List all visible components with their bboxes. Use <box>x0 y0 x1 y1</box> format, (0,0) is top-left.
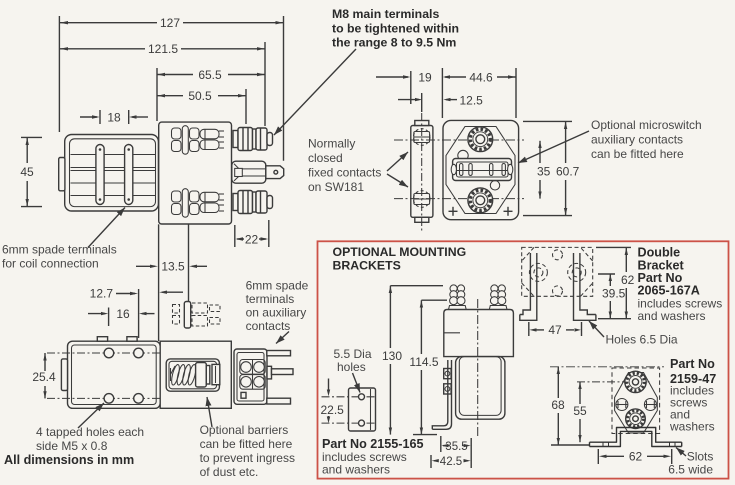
svg-text:Part No: Part No <box>670 357 715 371</box>
svg-text:13.5: 13.5 <box>161 260 185 274</box>
svg-text:for coil connection: for coil connection <box>2 257 99 271</box>
svg-text:4 tapped holes each: 4 tapped holes each <box>36 425 144 439</box>
svg-text:contacts: contacts <box>246 319 291 333</box>
svg-text:45: 45 <box>20 165 34 179</box>
svg-text:terminals: terminals <box>246 292 295 306</box>
svg-text:127: 127 <box>160 16 180 30</box>
svg-text:can be fitted here: can be fitted here <box>200 437 293 451</box>
svg-text:62: 62 <box>629 450 643 464</box>
svg-text:can be fitted here: can be fitted here <box>591 147 684 161</box>
svg-text:closed: closed <box>308 151 343 165</box>
svg-text:BRACKETS: BRACKETS <box>333 259 401 273</box>
svg-text:42.5: 42.5 <box>440 456 462 468</box>
svg-text:and washers: and washers <box>638 309 706 323</box>
svg-text:35.5: 35.5 <box>445 441 467 453</box>
svg-text:44.6: 44.6 <box>469 71 493 85</box>
svg-text:22.5: 22.5 <box>321 403 345 417</box>
svg-text:Slots: Slots <box>687 450 714 464</box>
svg-text:114.5: 114.5 <box>409 355 438 369</box>
svg-text:121.5: 121.5 <box>148 42 178 56</box>
svg-text:holes: holes <box>337 360 366 374</box>
svg-text:68: 68 <box>551 398 565 412</box>
svg-text:19: 19 <box>418 71 432 85</box>
svg-text:Double: Double <box>638 246 681 260</box>
svg-text:18: 18 <box>107 111 121 125</box>
svg-text:on auxiliary: on auxiliary <box>246 306 307 320</box>
svg-text:to prevent ingress: to prevent ingress <box>200 451 295 465</box>
svg-text:Optional barriers: Optional barriers <box>200 423 289 437</box>
svg-text:6.5 wide: 6.5 wide <box>668 463 713 477</box>
svg-text:50.5: 50.5 <box>188 89 212 103</box>
svg-text:Normally: Normally <box>308 137 355 151</box>
svg-text:12.5: 12.5 <box>460 94 484 108</box>
svg-text:130: 130 <box>382 349 402 363</box>
svg-text:39.5: 39.5 <box>602 287 626 301</box>
svg-text:60.7: 60.7 <box>556 165 580 179</box>
svg-text:and washers: and washers <box>322 463 390 477</box>
svg-text:16: 16 <box>116 307 130 321</box>
svg-text:Optional microswitch: Optional microswitch <box>591 118 702 132</box>
svg-text:auxiliary contacts: auxiliary contacts <box>591 133 683 147</box>
svg-text:side M5 x 0.8: side M5 x 0.8 <box>36 439 108 453</box>
svg-text:the range 8 to 9.5 Nm: the range 8 to 9.5 Nm <box>332 36 456 50</box>
svg-text:fixed contacts: fixed contacts <box>308 166 381 180</box>
svg-text:OPTIONAL MOUNTING: OPTIONAL MOUNTING <box>333 245 467 259</box>
svg-text:to be tightened within: to be tightened within <box>332 22 459 36</box>
svg-text:Holes 6.5 Dia: Holes 6.5 Dia <box>606 333 678 347</box>
svg-text:47: 47 <box>548 323 562 337</box>
svg-text:12.7: 12.7 <box>90 287 114 301</box>
svg-text:All dimensions in mm: All dimensions in mm <box>4 453 134 467</box>
svg-text:washers: washers <box>669 420 715 434</box>
svg-text:35: 35 <box>537 165 551 179</box>
svg-text:6mm spade: 6mm spade <box>246 279 309 293</box>
svg-text:62: 62 <box>621 273 635 287</box>
svg-text:55: 55 <box>573 404 587 418</box>
svg-text:2065-167A: 2065-167A <box>638 284 700 298</box>
svg-text:Part No 2155-165: Part No 2155-165 <box>322 437 424 451</box>
svg-text:of dust etc.: of dust etc. <box>200 465 259 479</box>
svg-text:5.5 Dia: 5.5 Dia <box>334 347 372 361</box>
svg-text:22: 22 <box>245 233 259 247</box>
svg-text:25.4: 25.4 <box>32 370 56 384</box>
svg-text:on SW181: on SW181 <box>308 180 364 194</box>
svg-text:6mm spade terminals: 6mm spade terminals <box>2 243 117 257</box>
svg-text:65.5: 65.5 <box>198 68 222 82</box>
svg-text:M8 main terminals: M8 main terminals <box>332 7 439 21</box>
